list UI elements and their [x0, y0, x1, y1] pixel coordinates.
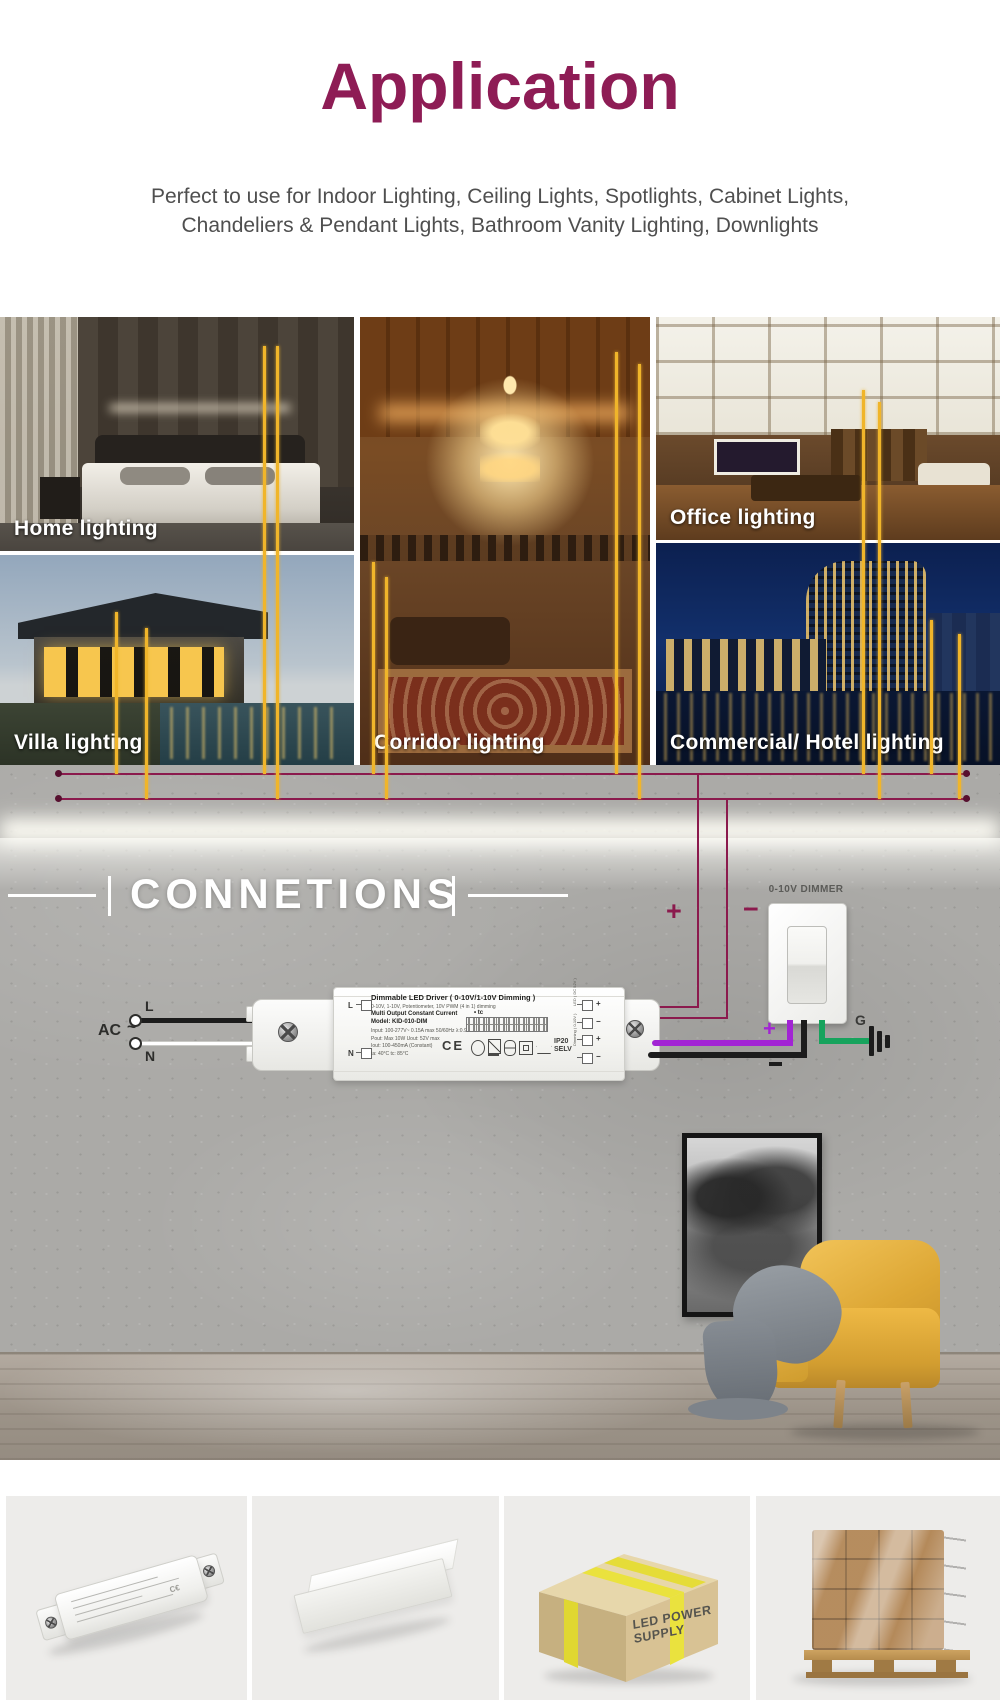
yellow-wire-line	[862, 390, 865, 774]
chandelier-shape	[480, 372, 540, 482]
wire-endpoint-dot	[55, 795, 62, 802]
yellow-wire-line	[878, 402, 881, 799]
heading-bar-left	[108, 876, 111, 916]
photo-label-hotel: Commercial/ Hotel lighting	[670, 731, 944, 755]
driver-pout-spec: Pout: Max 10W Uout: 52V max	[371, 1036, 440, 1042]
heading-bar-right	[452, 876, 455, 916]
dim-input-caption: Dimming ( 0-10V )	[572, 1014, 577, 1046]
ac-label: AC	[98, 1022, 121, 1040]
bus-wire-top	[59, 773, 970, 775]
balcony-rail-shape	[360, 535, 650, 561]
driver-temp-spec: ta: 40°C tc: 85°C	[371, 1051, 408, 1057]
driver-title: Dimmable LED Driver ( 0-10V/1-10V Dimmin…	[371, 993, 535, 1002]
photo-office-lighting: Office lighting	[656, 317, 1000, 540]
pallet-boxes-stack	[812, 1530, 944, 1650]
yellow-wire-line	[930, 620, 933, 774]
output-minus-label: −	[743, 894, 759, 925]
connections-heading: CONNETIONS	[130, 870, 460, 918]
yellow-wire-line	[276, 346, 279, 799]
driver-model: Model: KID-010-DIM	[371, 1019, 427, 1025]
wire-terminal-ring	[129, 1037, 142, 1050]
dim-terminal-label: −	[596, 1052, 601, 1061]
driver-seam	[334, 1071, 624, 1072]
driver-input-spec: Input: 100-277V~ 0.15A max 50/60Hz λ:0.9	[371, 1028, 467, 1034]
driver-device: L N Dimmable LED Driver ( 0-10V/1-10V Di…	[333, 987, 625, 1081]
subtitle-line-1: Perfect to use for Indoor Lighting, Ceil…	[0, 182, 1000, 211]
ground-symbol-icon	[869, 1026, 895, 1058]
desk-shape	[751, 475, 861, 501]
mini-ce-mark: C€	[169, 1583, 181, 1594]
driver-output-type: Multi Output Constant Current	[371, 1011, 457, 1017]
yellow-wire-line	[638, 364, 641, 799]
photo-label-corridor: Corridor lighting	[374, 731, 545, 755]
class2-insulation-icon	[519, 1041, 533, 1055]
nightstand-shape	[40, 477, 80, 519]
photo-label-home: Home lighting	[14, 517, 158, 541]
lit-windows-shape	[44, 647, 224, 697]
weee-bin-icon	[488, 1039, 501, 1054]
weee-bin-underline	[488, 1054, 499, 1056]
wire-endpoint-dot	[55, 770, 62, 777]
wire-endpoint-dot	[963, 795, 970, 802]
output-wire-minus	[726, 798, 728, 1019]
output-terminal-icon	[582, 1000, 593, 1011]
pallet-deck-board	[804, 1650, 970, 1660]
endcap-screw	[626, 1020, 644, 1038]
class2-inner-square	[523, 1045, 529, 1051]
indoor-use-icon	[536, 1041, 552, 1054]
pallet-block	[874, 1660, 894, 1672]
ac-tilde-label: ~	[127, 1019, 136, 1037]
page-title: Application	[0, 48, 1000, 124]
pallet-block	[936, 1660, 956, 1672]
coffered-ceiling-shape	[656, 317, 1000, 435]
mini-label-line	[73, 1578, 179, 1609]
city-shape	[928, 613, 1000, 691]
photo-label-villa: Villa lighting	[14, 731, 143, 755]
bus-wire-bottom	[59, 798, 970, 800]
live-wire	[137, 1018, 259, 1023]
photo-home-lighting: Home lighting	[0, 317, 354, 551]
yellow-wire-line	[615, 352, 618, 774]
output-plus-label: +	[666, 896, 682, 927]
led-output-caption: LED ( DC 52V )	[572, 978, 577, 1006]
pallet-boxes-side	[944, 1534, 966, 1653]
tv-screen-shape	[714, 439, 800, 475]
selv-rating: SELV	[554, 1046, 572, 1053]
pillow-shape	[120, 467, 190, 485]
yellow-wire-line	[145, 628, 148, 799]
dimmer-label: 0-10V DIMMER	[756, 884, 856, 895]
ce-mark: CE	[442, 1038, 464, 1053]
photo-villa-lighting: Villa lighting	[0, 555, 354, 765]
lamp-capsule-icon	[504, 1040, 516, 1056]
mini-label-line	[71, 1576, 158, 1602]
dim-plus-label: +	[763, 1016, 776, 1042]
photo-hotel-lighting: Commercial/ Hotel lighting	[656, 543, 1000, 765]
podium-building-shape	[666, 639, 826, 691]
driver-tc-mark: • tc	[474, 1010, 483, 1016]
ground-label: G	[855, 1012, 866, 1028]
driver-iout-spec: Iout: 100-450mA (Constant)	[371, 1043, 432, 1049]
product-photo-pallet	[756, 1496, 1000, 1700]
dim-terminal-label: +	[596, 1034, 601, 1043]
sofa-shape	[390, 617, 510, 665]
output-wire-plus	[697, 773, 699, 1008]
product-photo-carton: LED POWER SUPPLY	[504, 1496, 750, 1700]
subtitle-line-2: Chandeliers & Pendant Lights, Bathroom V…	[0, 211, 1000, 240]
pallet-bottom-board	[806, 1672, 968, 1678]
product-photo-driver: C€	[6, 1496, 247, 1700]
yellow-wire-line	[385, 577, 388, 799]
tc-label: tc	[478, 1010, 483, 1016]
yellow-wire-line	[263, 346, 266, 774]
mini-label-line	[77, 1594, 173, 1623]
dip-current-table	[466, 1017, 548, 1032]
wire-endpoint-dot	[963, 770, 970, 777]
ground-wire	[819, 1038, 871, 1044]
product-driver-body-group: C€	[25, 1524, 232, 1663]
heading-rule-right	[468, 894, 568, 897]
ip-rating: IP20	[554, 1038, 568, 1045]
output-terminal-label: −	[596, 1017, 601, 1026]
rohs-circle-icon	[471, 1040, 485, 1056]
page-subtitle: Perfect to use for Indoor Lighting, Ceil…	[0, 182, 1000, 240]
blanket-floor-fold	[688, 1398, 788, 1420]
product-photo-white-box	[252, 1496, 499, 1700]
neutral-wire	[137, 1041, 259, 1046]
dim-minus-mark	[769, 1062, 782, 1066]
neutral-label: N	[145, 1048, 155, 1064]
driver-terminal-n-label: N	[348, 1049, 354, 1058]
driver-terminal-l-label: L	[348, 1001, 353, 1010]
pallet-block	[812, 1660, 832, 1672]
output-terminal-icon	[582, 1018, 593, 1029]
villa-roof-shape	[18, 593, 268, 639]
photo-corridor-lighting: Corridor lighting	[360, 317, 650, 765]
photo-label-office: Office lighting	[670, 506, 816, 530]
output-terminal-label: +	[596, 999, 601, 1008]
pool-reflection-shape	[170, 707, 340, 759]
yellow-wire-line	[115, 612, 118, 774]
yellow-wire-line	[372, 562, 375, 774]
chair-shadow	[790, 1424, 980, 1440]
yellow-wire-line	[958, 634, 961, 799]
dimmer-rocker	[787, 926, 827, 1004]
mini-driver-body: C€	[54, 1554, 209, 1641]
dim-terminal-icon	[582, 1053, 593, 1064]
dim-terminal-icon	[582, 1035, 593, 1046]
endcap-screw	[278, 1022, 298, 1042]
product-page: Application Perfect to use for Indoor Li…	[0, 0, 1000, 1704]
dim-wire-minus	[648, 1052, 807, 1058]
live-label: L	[145, 998, 154, 1014]
heading-rule-left	[8, 894, 96, 897]
output-wire-minus	[652, 1017, 728, 1019]
